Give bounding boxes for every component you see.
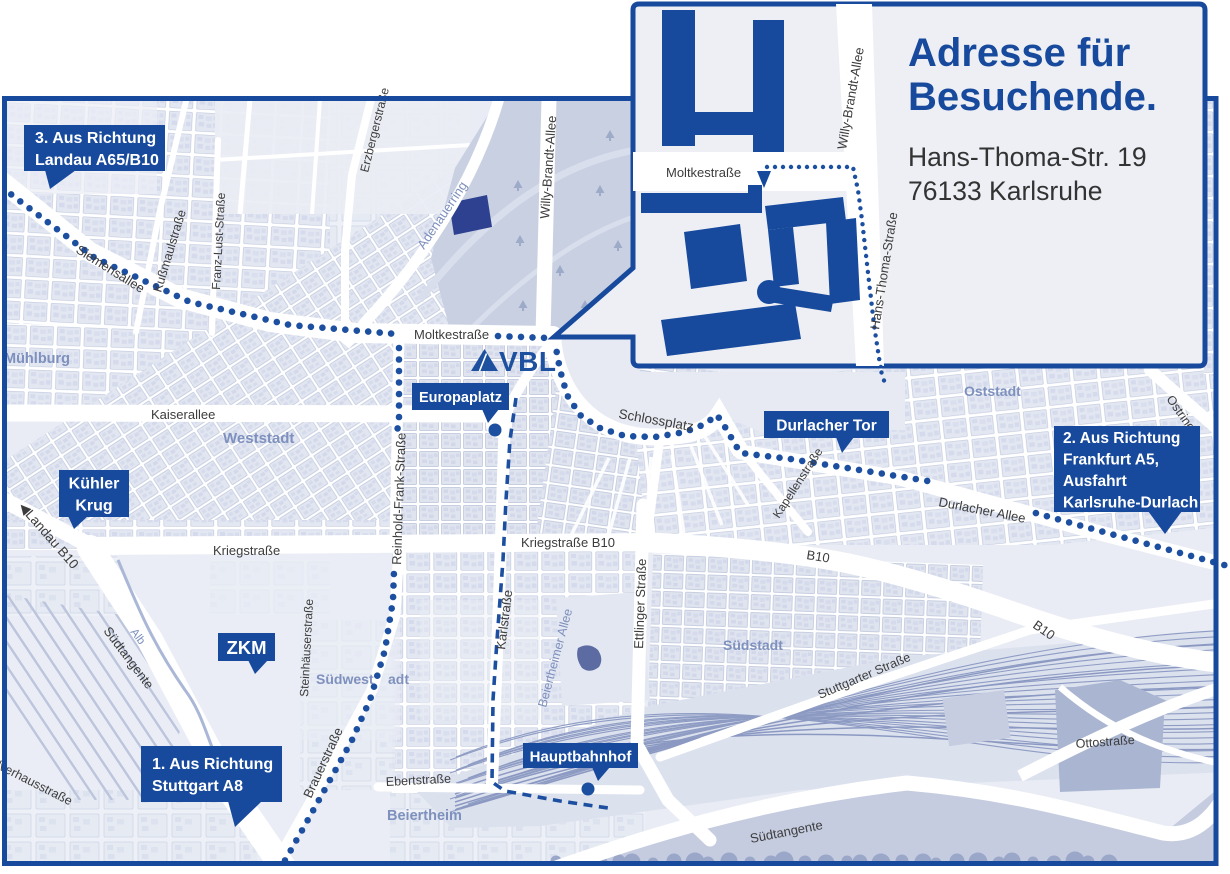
svg-text:Frankfurt A5,: Frankfurt A5, xyxy=(1063,451,1159,468)
svg-text:Kaiserallee: Kaiserallee xyxy=(151,407,215,422)
svg-text:Weststadt: Weststadt xyxy=(223,430,294,447)
svg-text:1. Aus Richtung: 1. Aus Richtung xyxy=(152,756,273,773)
svg-text:Durlacher Tor: Durlacher Tor xyxy=(776,418,877,435)
svg-text:Adresse für: Adresse für xyxy=(908,31,1130,75)
svg-text:Beiertheim: Beiertheim xyxy=(387,808,462,824)
svg-text:VBL: VBL xyxy=(499,346,557,377)
svg-text:Stuttgart A8: Stuttgart A8 xyxy=(152,778,243,795)
svg-text:Südwest: Südwest xyxy=(316,671,374,687)
svg-text:Hauptbahnhof: Hauptbahnhof xyxy=(530,748,633,765)
svg-text:Krug: Krug xyxy=(75,498,112,515)
svg-text:Ausfahrt: Ausfahrt xyxy=(1063,473,1127,490)
svg-text:Moltkestraße: Moltkestraße xyxy=(414,327,489,342)
svg-text:Karlsruhe-Durlach: Karlsruhe-Durlach xyxy=(1063,494,1198,511)
svg-text:Kriegstraße B10: Kriegstraße B10 xyxy=(521,535,615,550)
svg-text:76133 Karlsruhe: 76133 Karlsruhe xyxy=(908,176,1102,206)
svg-text:Landau A65/B10: Landau A65/B10 xyxy=(35,152,159,169)
svg-text:Hans-Thoma-Str. 19: Hans-Thoma-Str. 19 xyxy=(908,142,1147,172)
svg-text:ZKM: ZKM xyxy=(226,637,266,658)
svg-text:3. Aus Richtung: 3. Aus Richtung xyxy=(35,130,156,147)
svg-text:Mühlburg: Mühlburg xyxy=(4,351,70,367)
svg-text:2. Aus Richtung: 2. Aus Richtung xyxy=(1063,430,1180,447)
svg-text:Europaplatz: Europaplatz xyxy=(419,390,502,406)
svg-text:Moltkestraße: Moltkestraße xyxy=(666,165,741,180)
svg-text:Südstadt: Südstadt xyxy=(723,637,783,653)
svg-text:Kühler: Kühler xyxy=(69,476,120,493)
svg-text:adt: adt xyxy=(388,671,409,687)
svg-text:Oststadt: Oststadt xyxy=(964,383,1021,399)
svg-text:Ettlinger Straße: Ettlinger Straße xyxy=(631,558,649,649)
svg-text:Kriegstraße: Kriegstraße xyxy=(213,543,280,558)
svg-text:Besuchende.: Besuchende. xyxy=(908,75,1157,119)
